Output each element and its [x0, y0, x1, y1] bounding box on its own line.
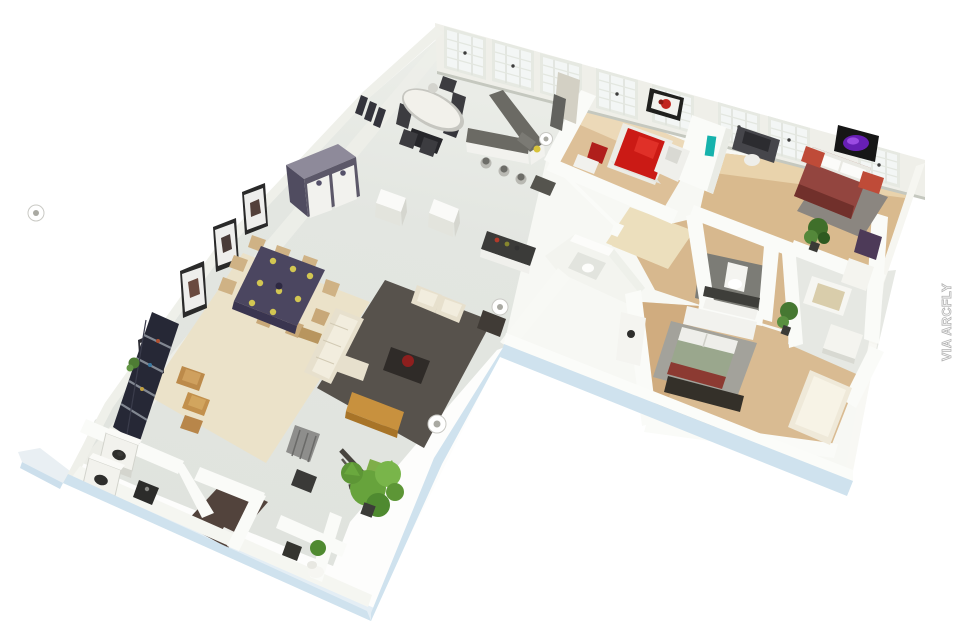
- svg-text:VIA ARCFLY: VIA ARCFLY: [940, 283, 954, 361]
